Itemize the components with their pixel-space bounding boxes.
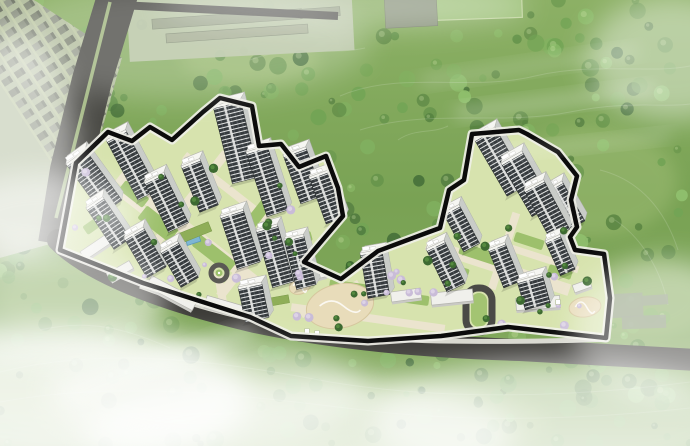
masterplan-rendering (0, 0, 690, 446)
aerial-site-plan (0, 0, 690, 446)
